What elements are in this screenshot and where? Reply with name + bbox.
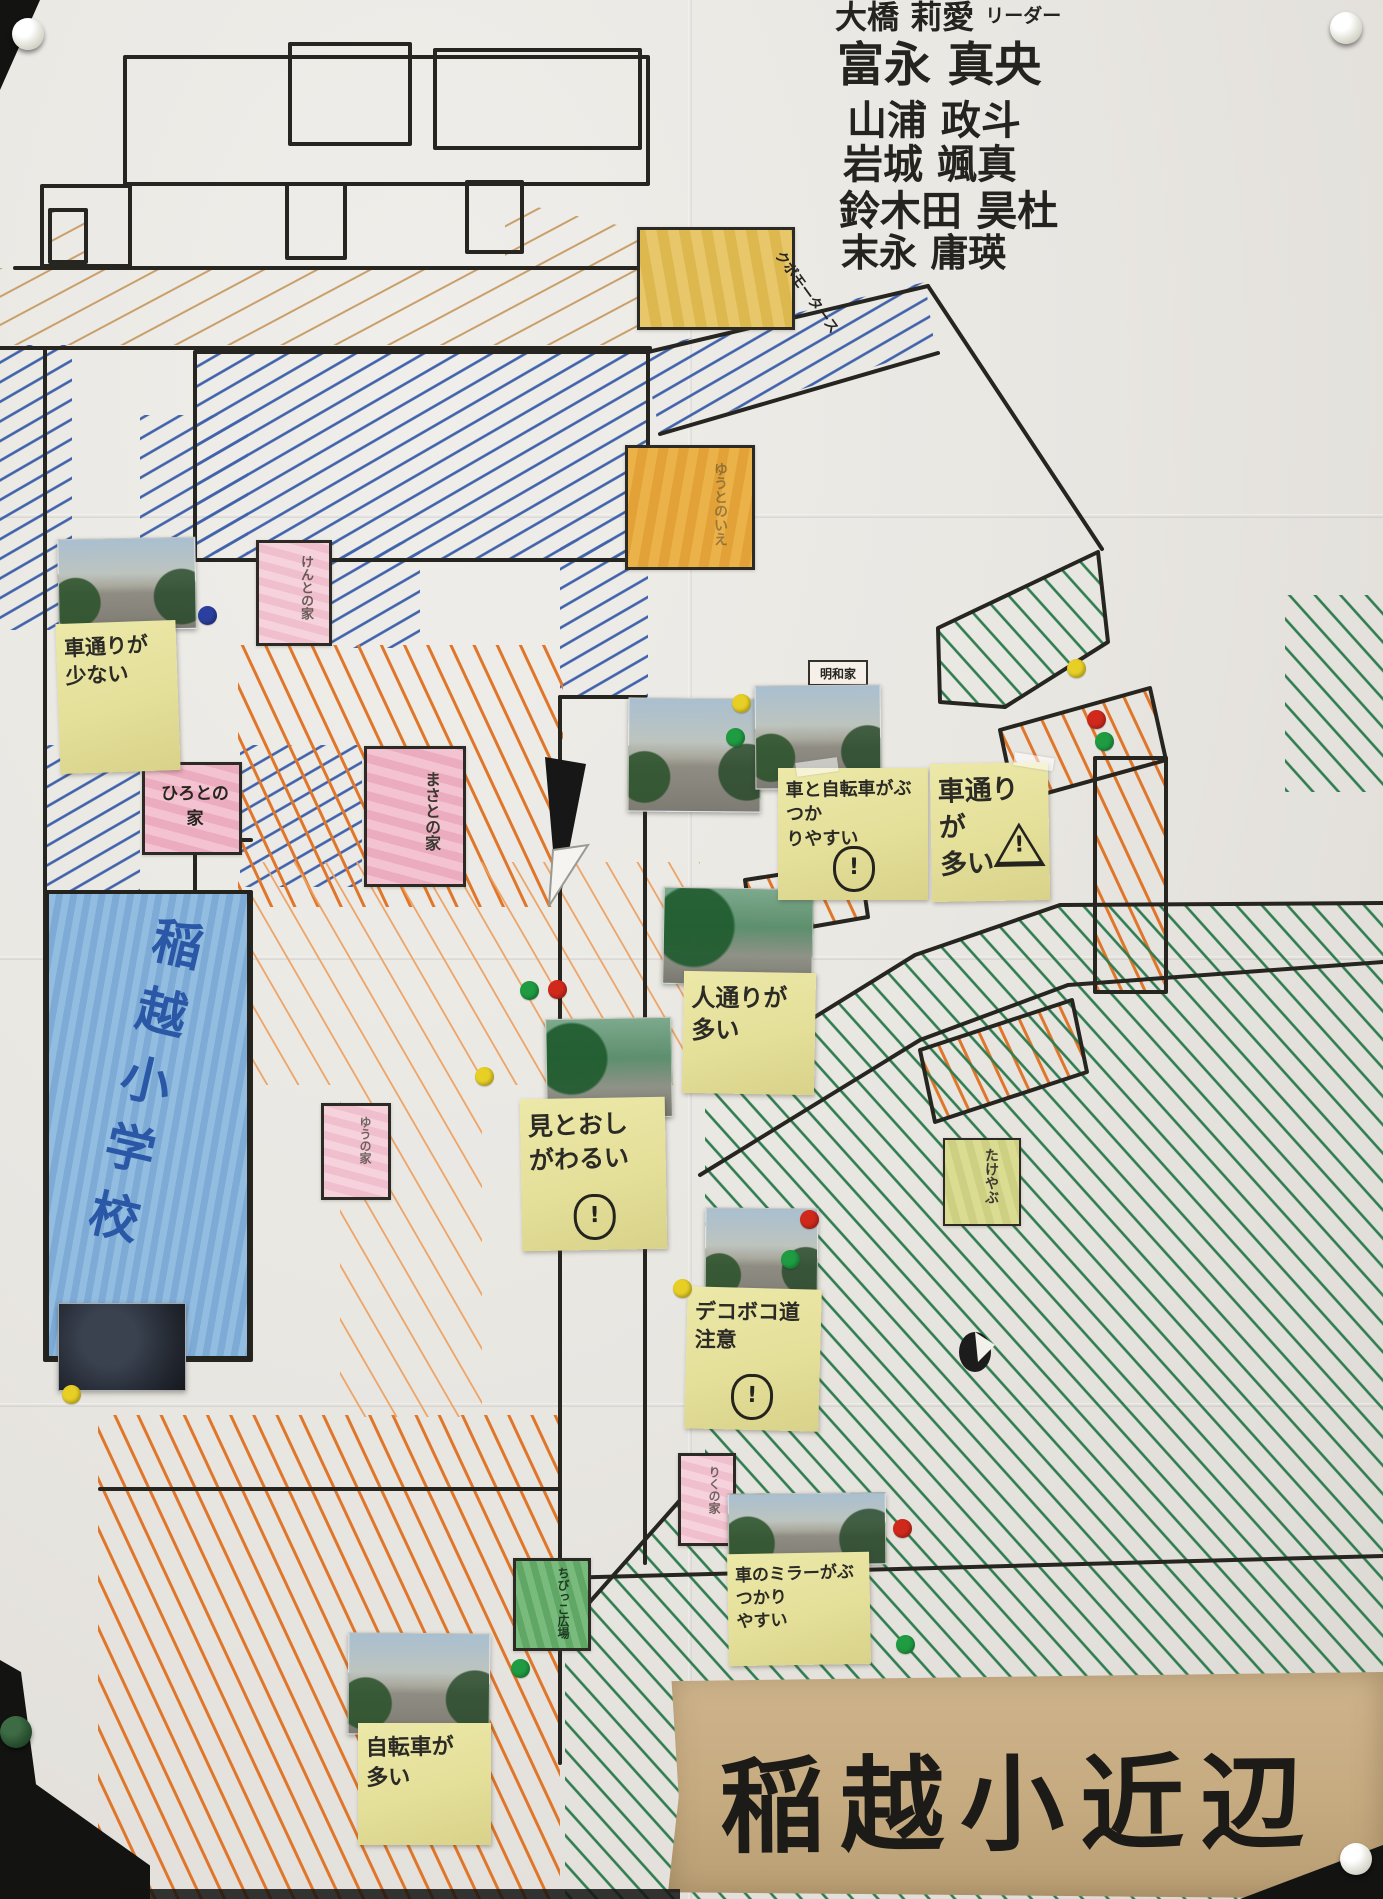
warning-triangle-icon: ! — [993, 822, 1046, 867]
building-pink-house-4-label: ゆうの家 — [357, 1116, 374, 1164]
leader-tag: リーダー — [985, 5, 1061, 27]
dot-sticker-yellow — [62, 1385, 81, 1404]
sticky-note-poor-visibility: 見とおし がわるい ! — [520, 1097, 668, 1252]
author-name: 富永 真央 — [837, 26, 1041, 95]
note-text: 見とおし がわるい — [527, 1106, 658, 1178]
sticky-note-few-traffic: 車通りが 少ない — [55, 620, 180, 774]
dot-sticker-yellow — [1067, 659, 1086, 678]
sticky-note-many-bicycles: 自転車が 多い — [358, 1723, 491, 1845]
street-photo-1 — [57, 537, 197, 631]
building-meiwa-house-label: 明和家 — [820, 667, 856, 681]
dot-sticker-red — [548, 980, 567, 999]
dot-sticker-green — [896, 1635, 915, 1654]
dot-sticker-blue — [198, 606, 217, 625]
dot-sticker-green — [511, 1659, 530, 1678]
author-name: 末永 庸瑛 — [841, 222, 1006, 277]
note-text: 車通りが 少ない — [63, 629, 170, 691]
dot-sticker-green — [520, 981, 539, 1000]
note-text: 自転車が 多い — [365, 1732, 483, 1793]
sticky-note-heavy-traffic: 車通りが 多い ! — [930, 762, 1050, 902]
building-pink-house-3: まさとの家 — [364, 746, 466, 887]
building-pink-house-3-label: まさとの家 — [419, 771, 443, 851]
building-green-lot: ちびっこ広場 — [513, 1558, 591, 1651]
dot-sticker-yellow — [732, 694, 751, 713]
note-text: 人通りが 多い — [691, 982, 807, 1047]
building-green-lot-label: ちびっこ広場 — [555, 1567, 572, 1639]
person-warning-icon: ! — [833, 846, 875, 892]
building-bamboo-label: たけやぶ — [981, 1148, 1001, 1204]
dot-sticker-red — [800, 1210, 819, 1229]
street-photo-2 — [628, 697, 762, 812]
note-text: デコボコ道 注意 — [695, 1297, 813, 1355]
sticky-note-car-bike-collision: 車と自転車がぶつか りやすい ! — [778, 768, 928, 900]
dot-sticker-green — [781, 1250, 800, 1269]
push-pin — [1340, 1843, 1372, 1875]
background-edge — [120, 1889, 680, 1899]
dot-sticker-red — [1087, 710, 1106, 729]
push-pin — [1330, 12, 1362, 44]
sticky-note-many-pedestrians: 人通りが 多い — [682, 971, 816, 1095]
building-meiwa-house: 明和家 — [808, 660, 868, 686]
note-text: 車のミラーがぶつかり やすい — [735, 1561, 863, 1634]
map-title: 稲越小近辺 — [719, 1718, 1320, 1873]
dot-sticker-green — [1095, 732, 1114, 751]
dot-sticker-green — [726, 728, 745, 747]
building-orange-house: ゆうとのいえ — [625, 445, 755, 570]
note-text: 車と自転車がぶつか りやすい — [785, 777, 920, 852]
street-photo-7 — [58, 1303, 186, 1391]
authors-list: 大橋 莉愛 リーダー 富永 真央 山浦 政斗 岩城 颯真 鈴木田 昊杜 末永 庸… — [835, 0, 1335, 270]
title-banner: 稲越小近辺 — [668, 1672, 1383, 1899]
building-pink-house-1-label: けんとの家 — [296, 555, 315, 620]
building-pink-house-1: けんとの家 — [256, 540, 332, 646]
street-photo-9 — [348, 1632, 491, 1735]
push-pin — [12, 18, 44, 50]
dot-sticker-yellow — [673, 1279, 692, 1298]
push-pin-green — [0, 1716, 32, 1748]
building-bamboo: たけやぶ — [943, 1138, 1021, 1226]
building-pink-house-4: ゆうの家 — [321, 1103, 391, 1200]
sticky-note-car-mirror: 車のミラーがぶつかり やすい — [727, 1552, 871, 1666]
person-warning-icon: ! — [730, 1373, 773, 1420]
school-area: 稲越小学校 — [45, 890, 251, 1360]
poster-photo: 大橋 莉愛 リーダー 富永 真央 山浦 政斗 岩城 颯真 鈴木田 昊杜 末永 庸… — [0, 0, 1383, 1899]
dot-sticker-red — [893, 1519, 912, 1538]
building-orange-house-label: ゆうとのいえ — [710, 462, 730, 546]
dot-sticker-yellow — [475, 1067, 494, 1086]
person-warning-icon: ! — [573, 1194, 616, 1241]
school-label: 稲越小学校 — [45, 910, 214, 1355]
building-pink-house-2-label: ひろとの家 — [155, 779, 235, 829]
building-pink-house-5-label: りくの家 — [706, 1466, 723, 1514]
sticky-note-bumpy-road: デコボコ道 注意 ! — [684, 1286, 822, 1431]
building-pink-house-2: ひろとの家 — [142, 762, 242, 855]
